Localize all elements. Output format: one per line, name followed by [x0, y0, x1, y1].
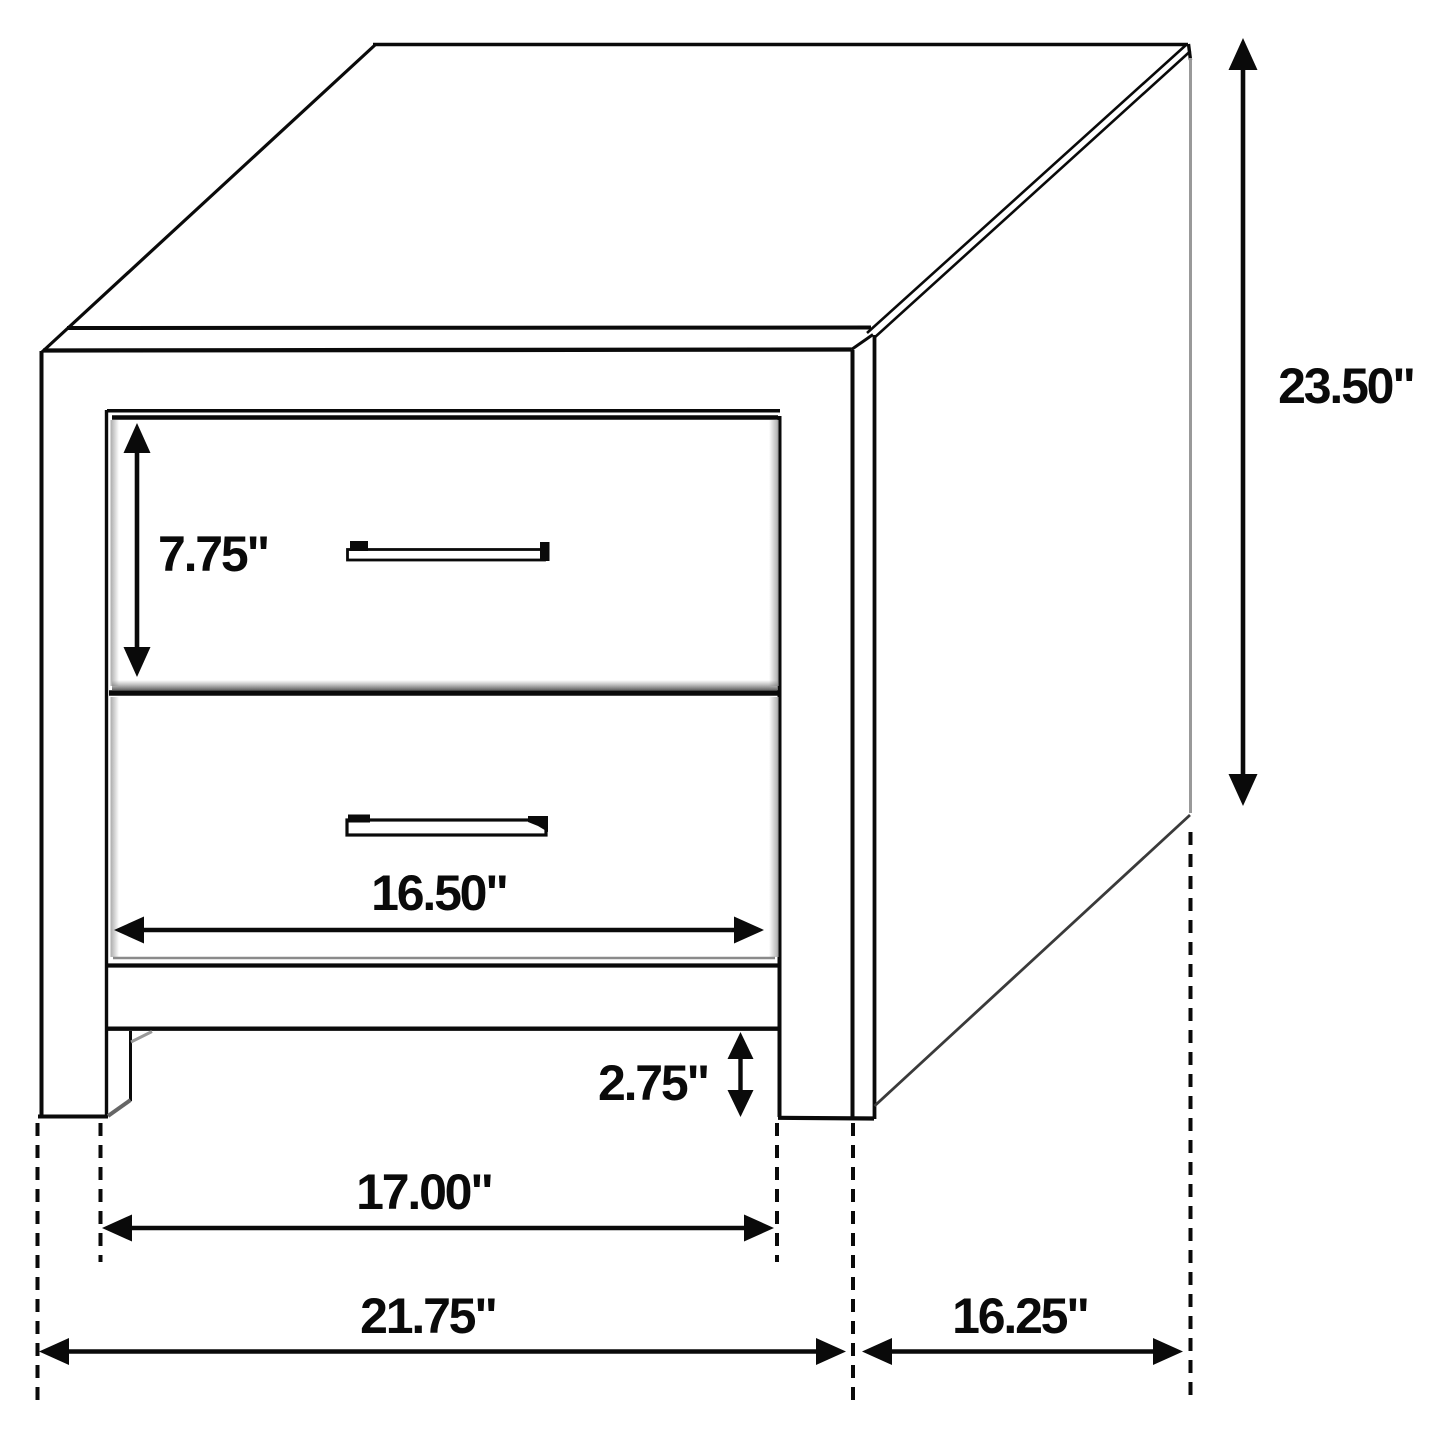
svg-text:16.25": 16.25": [952, 1288, 1088, 1344]
svg-text:2.75": 2.75": [598, 1055, 708, 1111]
svg-text:21.75": 21.75": [360, 1288, 496, 1344]
svg-text:23.50": 23.50": [1278, 358, 1414, 414]
svg-text:7.75": 7.75": [158, 526, 268, 582]
svg-text:17.00": 17.00": [356, 1164, 492, 1220]
svg-text:16.50": 16.50": [371, 865, 507, 921]
